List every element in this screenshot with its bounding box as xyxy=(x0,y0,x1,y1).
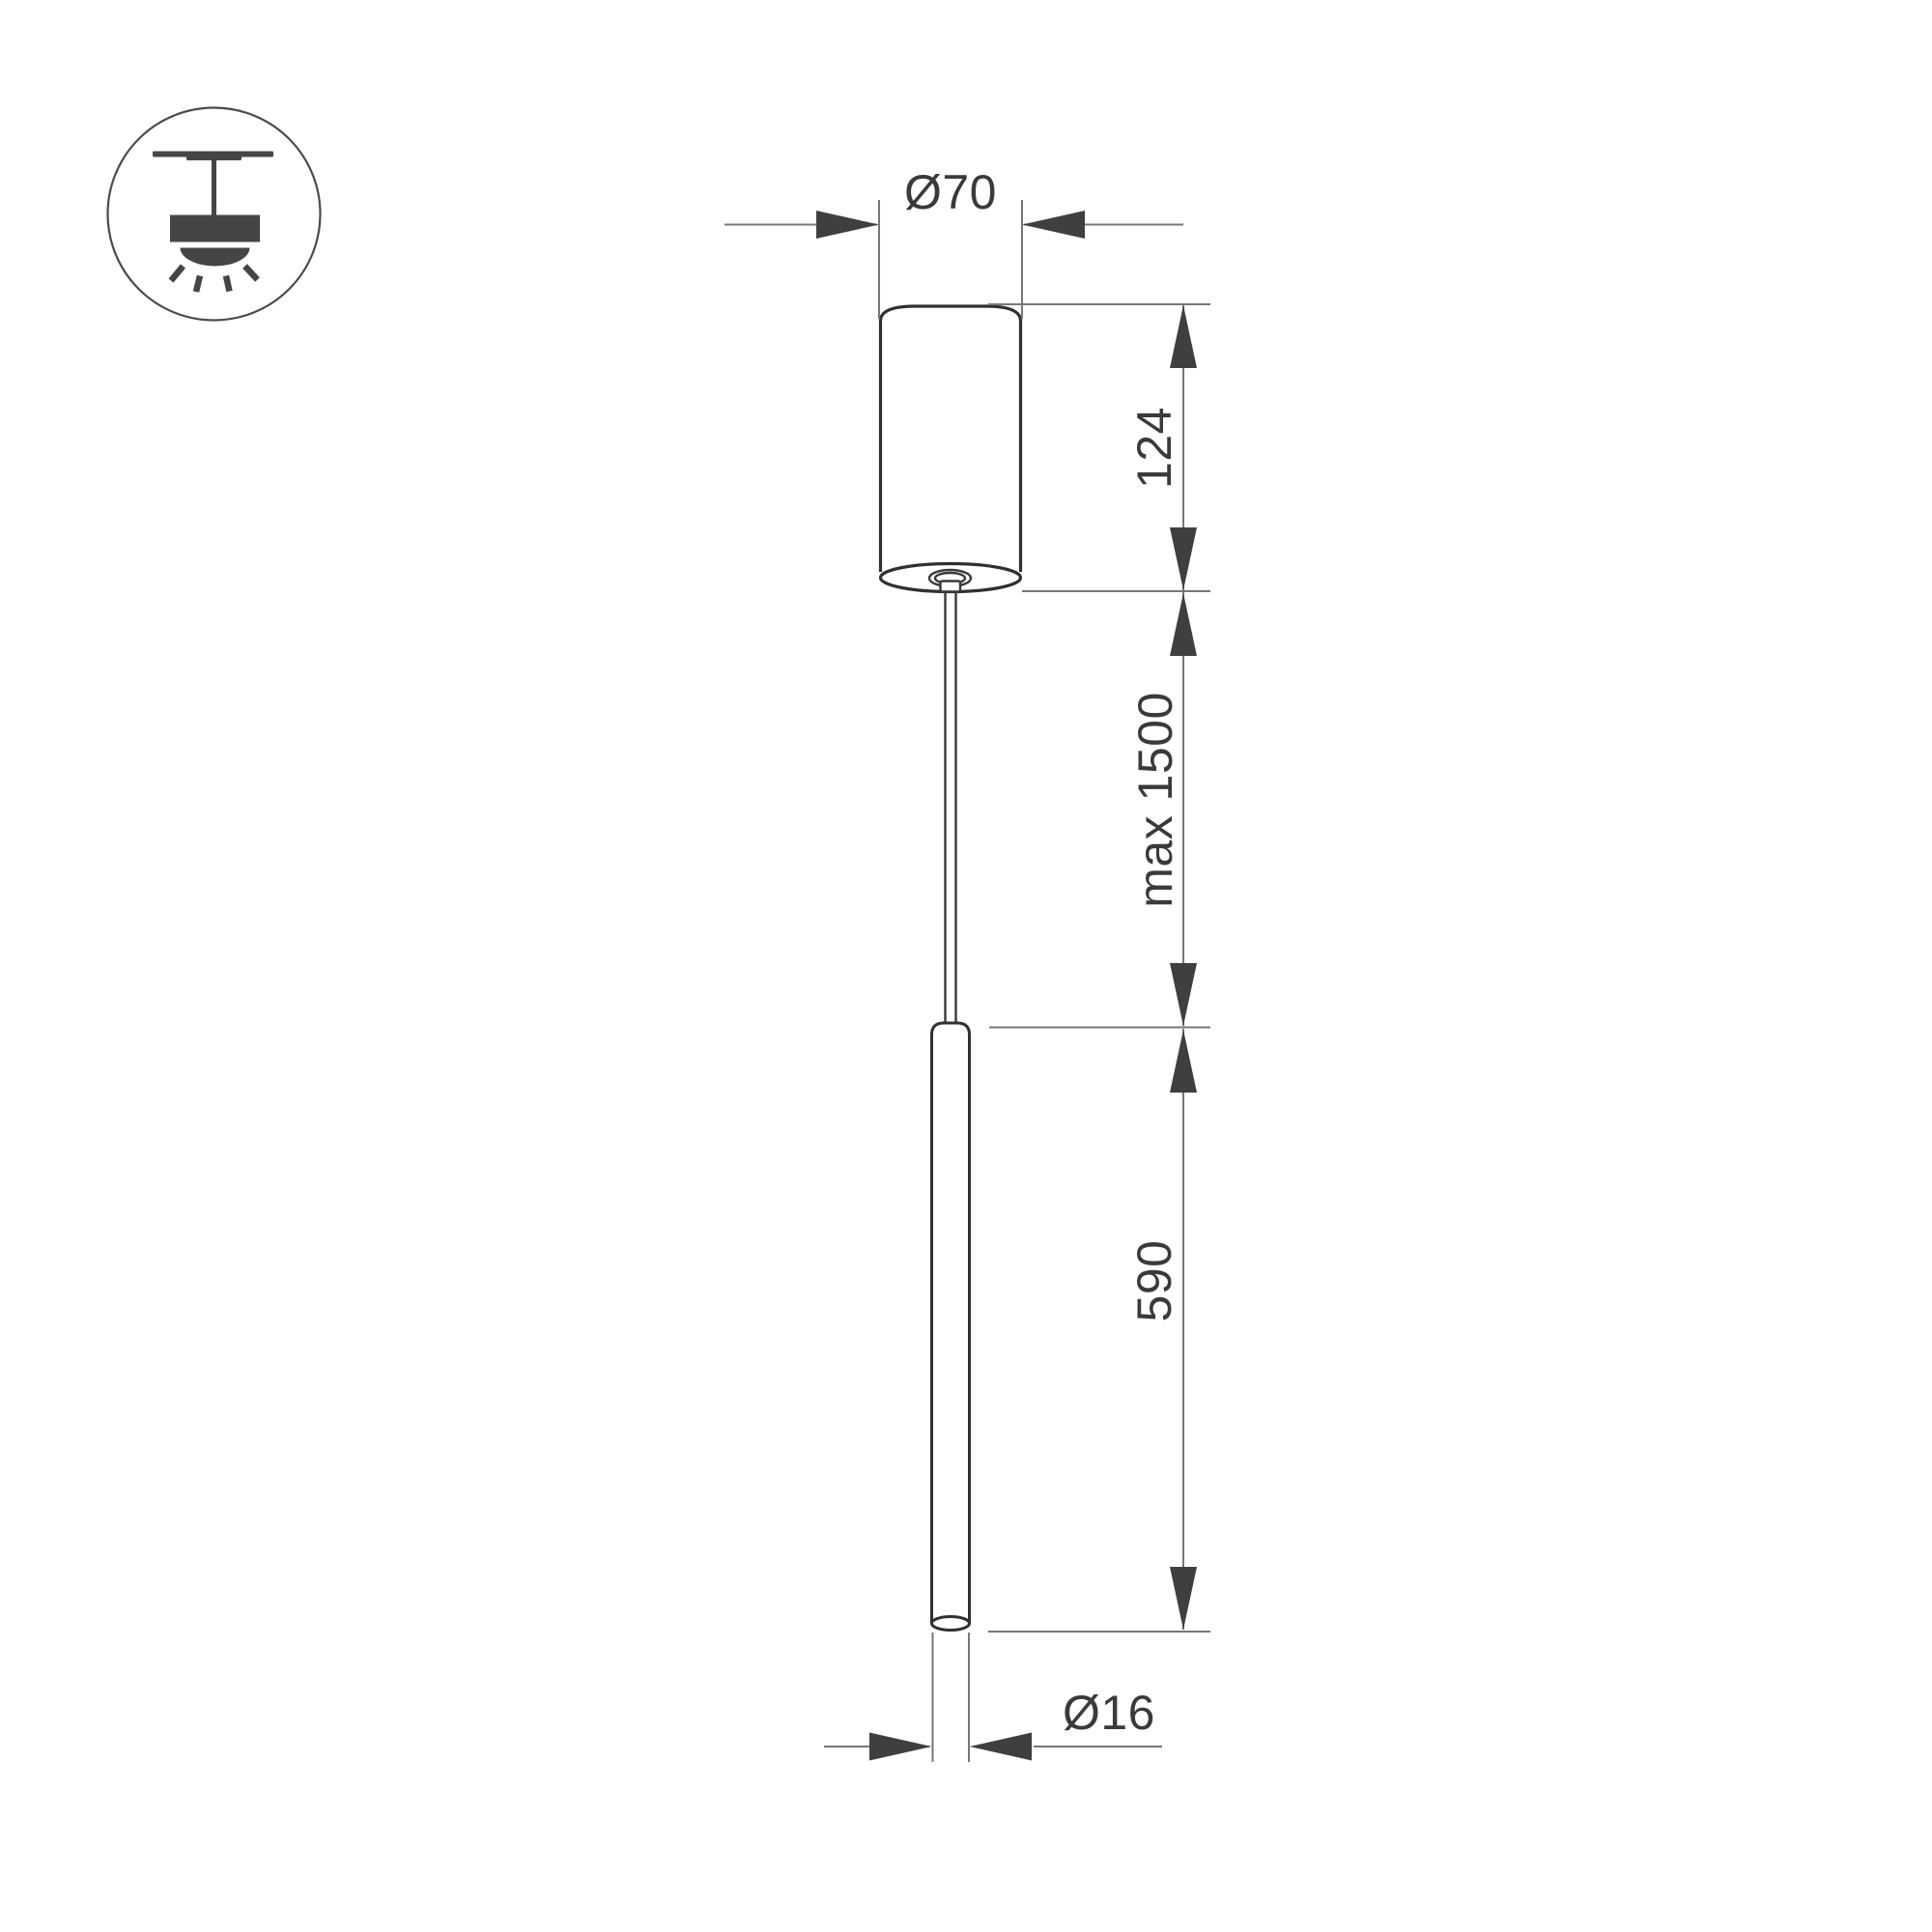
canopy xyxy=(881,306,1021,592)
dim-suspension-max: max 1500 xyxy=(989,592,1210,1028)
arrowhead-up-icon xyxy=(1170,593,1197,656)
suspension-rod-icon xyxy=(212,157,216,216)
suspension-cable xyxy=(941,582,961,1023)
light-ray-icon xyxy=(196,276,200,293)
arrowhead-down-icon xyxy=(1170,527,1197,590)
light-tube xyxy=(932,1023,970,1631)
arrowhead-left-icon xyxy=(1022,211,1085,239)
arrowhead-down-icon xyxy=(1170,1567,1197,1630)
light-ray-icon xyxy=(226,276,230,292)
light-ray-icon xyxy=(171,267,184,281)
arrowhead-down-icon xyxy=(1170,963,1197,1026)
arrowhead-right-icon xyxy=(869,1733,932,1761)
dim-label-suspension-max: max 1500 xyxy=(1128,692,1182,908)
technical-drawing-canvas: Ø70 124 max 1500 590 xyxy=(0,0,1932,1932)
dim-label-tube-length: 590 xyxy=(1127,1240,1181,1322)
tube-body-outline xyxy=(932,1023,970,1624)
dim-canopy-diameter: Ø70 xyxy=(724,165,1183,319)
pendant-light-dimension-drawing: Ø70 124 max 1500 590 xyxy=(0,0,1932,1932)
dim-label-canopy-diameter: Ø70 xyxy=(904,165,997,219)
arrowhead-up-icon xyxy=(1170,1030,1197,1093)
cable-strain-relief xyxy=(941,582,961,592)
dim-tube-diameter: Ø16 xyxy=(824,1633,1162,1762)
light-rays-icon xyxy=(171,267,258,293)
dim-label-tube-diameter: Ø16 xyxy=(1063,1686,1155,1740)
arrowhead-up-icon xyxy=(1170,305,1197,368)
arrowhead-right-icon xyxy=(816,211,879,239)
light-ray-icon xyxy=(245,267,258,280)
lamp-body-icon xyxy=(170,215,260,242)
tube-bottom-ellipse xyxy=(932,1617,970,1631)
lamp-diffuser-icon xyxy=(181,248,250,267)
dim-tube-length: 590 xyxy=(988,1029,1210,1632)
canopy-body-outline xyxy=(881,306,1021,572)
dim-label-canopy-height: 124 xyxy=(1127,407,1181,489)
pendant-ceiling-mount-icon xyxy=(108,108,321,321)
arrowhead-left-icon xyxy=(970,1733,1033,1761)
